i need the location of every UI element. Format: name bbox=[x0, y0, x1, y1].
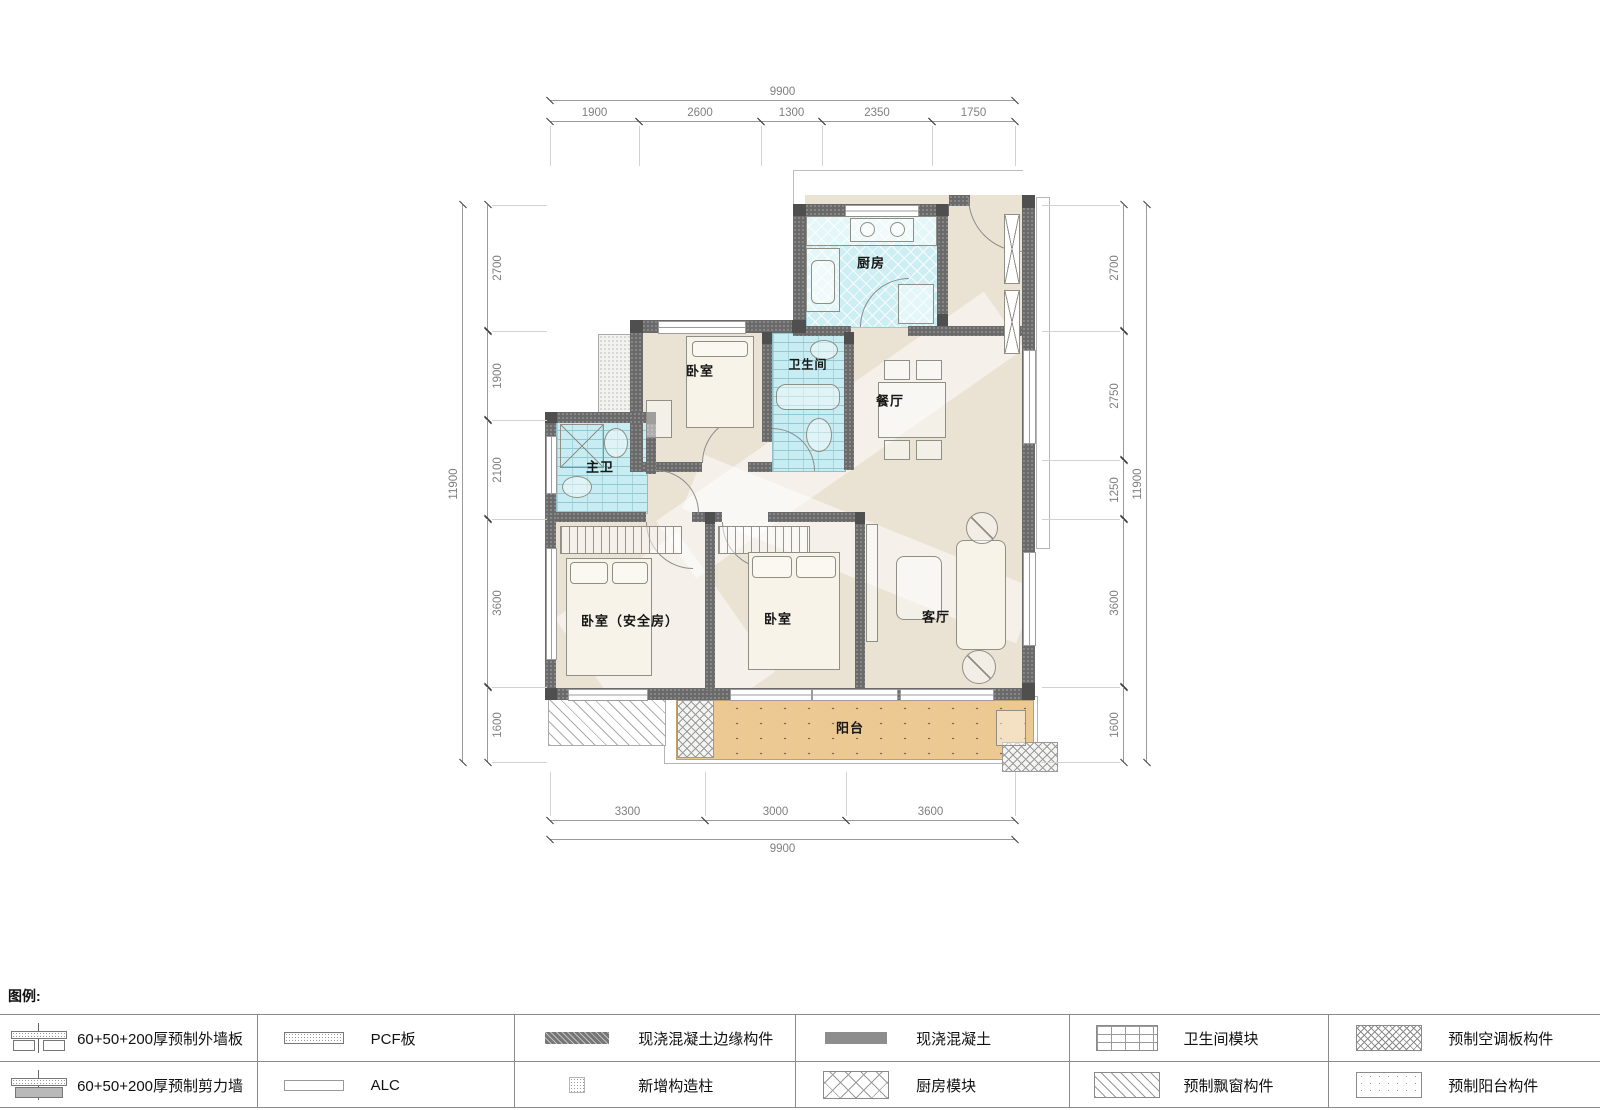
edge-member-block bbox=[630, 320, 643, 333]
dim-segment: 1600 bbox=[1123, 687, 1125, 762]
dim-segment: 1250 bbox=[1123, 460, 1125, 519]
window bbox=[1023, 350, 1036, 444]
dim-segment: 2750 bbox=[1123, 331, 1125, 460]
room-label-kitchen: 厨房 bbox=[857, 253, 885, 272]
edge-member-block bbox=[793, 204, 806, 216]
bathtub bbox=[776, 384, 840, 410]
extension-line bbox=[1042, 460, 1120, 461]
dim-segment: 3000 bbox=[705, 820, 846, 822]
edge-member-block bbox=[792, 320, 806, 333]
room-label-bedroom-top: 卧室 bbox=[686, 361, 714, 380]
chair bbox=[884, 440, 910, 460]
wall-segment bbox=[762, 332, 772, 442]
precast-ac-panel-symbol bbox=[1329, 1025, 1448, 1051]
dim-segment: 1900 bbox=[550, 121, 639, 123]
window bbox=[546, 436, 557, 494]
new-structural-column-symbol bbox=[515, 1077, 638, 1093]
kitchen-sink bbox=[811, 260, 835, 304]
window bbox=[900, 689, 994, 701]
wall-segment bbox=[630, 320, 643, 472]
extension-line bbox=[1015, 126, 1016, 166]
room-label-bedroom-mid: 卧室 bbox=[764, 609, 792, 628]
pillow bbox=[612, 562, 648, 584]
edge-member-block bbox=[844, 332, 854, 344]
extension-line bbox=[1042, 687, 1120, 688]
legend-table: 60+50+200厚预制外墙板 PCF板 现浇混凝土边缘构件 现浇混凝土 卫生间… bbox=[0, 1014, 1600, 1108]
sliding-door bbox=[812, 689, 898, 701]
legend-label: 卫生间模块 bbox=[1184, 1028, 1328, 1049]
extension-line bbox=[492, 687, 547, 688]
edge-member-block bbox=[855, 512, 865, 524]
wall-segment bbox=[556, 512, 646, 522]
extension-line bbox=[1042, 331, 1120, 332]
wall-segment bbox=[705, 522, 715, 690]
shoe-cabinet bbox=[1004, 214, 1020, 284]
legend-cell-precast-exterior-wall: 60+50+200厚预制外墙板 bbox=[0, 1015, 258, 1061]
edge-member-block bbox=[1022, 195, 1035, 208]
room-label-living: 客厅 bbox=[922, 607, 950, 626]
window bbox=[730, 689, 812, 701]
extension-line bbox=[492, 331, 547, 332]
fridge bbox=[898, 284, 934, 324]
chair bbox=[916, 440, 942, 460]
extension-line bbox=[492, 205, 547, 206]
edge-member-block bbox=[545, 688, 557, 700]
window bbox=[568, 689, 648, 701]
legend-cell-kitchen-module: 厨房模块 bbox=[796, 1062, 1070, 1108]
window bbox=[658, 321, 746, 334]
edge-member-block bbox=[762, 332, 772, 344]
legend-cell-alc: ALC bbox=[258, 1062, 515, 1108]
dim-segment: 2600 bbox=[639, 121, 761, 123]
toilet bbox=[604, 428, 628, 458]
cast-in-place-concrete-symbol bbox=[796, 1032, 916, 1044]
legend-label: 厨房模块 bbox=[916, 1075, 1069, 1096]
burner bbox=[890, 222, 905, 237]
chair bbox=[916, 360, 942, 380]
extension-line bbox=[761, 126, 762, 166]
wall-segment bbox=[793, 204, 806, 332]
chair bbox=[884, 360, 910, 380]
extension-line bbox=[492, 762, 547, 763]
legend-row: 60+50+200厚预制剪力墙 ALC 新增构造柱 厨房模块 预制飘窗构件 预制… bbox=[0, 1062, 1600, 1108]
floor-plan-sheet: 厨房 卧室 卫生间 餐厅 主卫 卧室（安全房） 卧室 客厅 阳台 9900 19… bbox=[0, 0, 1600, 1110]
extension-line bbox=[1042, 205, 1120, 206]
window bbox=[546, 548, 557, 660]
precast-exterior-wall-symbol bbox=[0, 1023, 77, 1053]
burner bbox=[860, 222, 875, 237]
pcf-panel-symbol bbox=[258, 1032, 371, 1044]
extension-line bbox=[1042, 762, 1120, 763]
dim-segment: 3300 bbox=[550, 820, 705, 822]
legend-label: 新增构造柱 bbox=[638, 1075, 795, 1096]
edge-member-block bbox=[937, 314, 948, 326]
dim-total-left: 11900 bbox=[462, 205, 464, 762]
room-label-bath: 卫生间 bbox=[788, 356, 827, 373]
extension-line bbox=[492, 420, 547, 421]
pillow bbox=[570, 562, 608, 584]
washing-machine bbox=[996, 710, 1026, 746]
plant bbox=[966, 512, 998, 544]
extension-line bbox=[492, 519, 547, 520]
precast-bay-window-symbol bbox=[1070, 1072, 1184, 1098]
sofa bbox=[956, 540, 1006, 650]
edge-member-block bbox=[705, 512, 715, 524]
dim-segment: 1600 bbox=[487, 687, 489, 762]
pillow bbox=[752, 556, 792, 578]
legend-label: PCF板 bbox=[371, 1028, 514, 1049]
room-label-master-bath: 主卫 bbox=[586, 457, 614, 476]
extension-line bbox=[550, 772, 551, 816]
bathroom-module-symbol bbox=[1070, 1025, 1184, 1051]
room-label-bedroom-safe: 卧室（安全房） bbox=[581, 611, 679, 630]
window bbox=[1023, 552, 1036, 646]
legend-cell-concrete: 现浇混凝土 bbox=[796, 1015, 1070, 1061]
wall-segment bbox=[844, 332, 854, 470]
legend-label: ALC bbox=[371, 1077, 514, 1094]
extension-line bbox=[639, 126, 640, 166]
plant bbox=[962, 650, 996, 684]
legend-cell-balcony-component: 预制阳台构件 bbox=[1329, 1062, 1600, 1108]
pillow bbox=[796, 556, 836, 578]
extension-line bbox=[846, 772, 847, 816]
precast-balcony-symbol bbox=[1329, 1072, 1448, 1098]
boundary-line bbox=[793, 170, 1023, 171]
dim-segment: 3600 bbox=[1123, 519, 1125, 687]
legend-label: 现浇混凝土 bbox=[916, 1028, 1069, 1049]
wall-segment bbox=[937, 204, 948, 326]
legend-cell-precast-shear-wall: 60+50+200厚预制剪力墙 bbox=[0, 1062, 258, 1108]
boundary-line bbox=[793, 170, 794, 205]
legend-label: 预制空调板构件 bbox=[1448, 1028, 1600, 1049]
pillow bbox=[692, 341, 748, 357]
legend-label: 预制飘窗构件 bbox=[1184, 1075, 1328, 1096]
legend-title: 图例: bbox=[8, 986, 41, 1006]
dim-segment: 1900 bbox=[487, 331, 489, 420]
wall-segment bbox=[545, 412, 646, 423]
dim-segment: 2700 bbox=[487, 205, 489, 331]
tv-bench bbox=[866, 524, 878, 642]
legend-label: 预制阳台构件 bbox=[1448, 1075, 1600, 1096]
legend-cell-bathroom-module: 卫生间模块 bbox=[1070, 1015, 1329, 1061]
dim-segment: 1300 bbox=[761, 121, 822, 123]
ac-ledge bbox=[1036, 197, 1050, 549]
extension-line bbox=[1015, 772, 1016, 816]
extension-line bbox=[1042, 519, 1120, 520]
dim-segment: 1750 bbox=[932, 121, 1015, 123]
wardrobe bbox=[560, 526, 682, 554]
edge-member-block bbox=[1022, 683, 1035, 700]
legend-cell-ac-panel: 预制空调板构件 bbox=[1329, 1015, 1600, 1061]
extension-line bbox=[705, 772, 706, 816]
edge-member-block bbox=[936, 204, 948, 216]
kitchen-module-symbol bbox=[796, 1071, 916, 1099]
legend-cell-structural-column: 新增构造柱 bbox=[515, 1062, 796, 1108]
alc-panel-symbol bbox=[258, 1080, 371, 1091]
legend-label: 现浇混凝土边缘构件 bbox=[638, 1028, 795, 1049]
desk bbox=[646, 400, 672, 438]
dim-segment: 2700 bbox=[1123, 205, 1125, 331]
shoe-cabinet bbox=[1004, 290, 1020, 354]
dim-total-right: 11900 bbox=[1146, 205, 1148, 762]
edge-member-block bbox=[545, 412, 557, 423]
precast-ac-panel-component bbox=[677, 700, 714, 758]
wall-segment bbox=[855, 512, 865, 690]
ac-platform bbox=[598, 334, 632, 416]
dim-segment: 3600 bbox=[487, 519, 489, 687]
wall-segment bbox=[768, 512, 865, 522]
legend-row: 60+50+200厚预制外墙板 PCF板 现浇混凝土边缘构件 现浇混凝土 卫生间… bbox=[0, 1015, 1600, 1062]
legend-label: 60+50+200厚预制外墙板 bbox=[77, 1028, 257, 1049]
toilet bbox=[806, 418, 832, 452]
precast-bay-window-component bbox=[548, 698, 666, 746]
precast-shear-wall-symbol bbox=[0, 1070, 77, 1100]
washbasin bbox=[562, 476, 592, 498]
dim-total-bottom: 9900 bbox=[550, 839, 1015, 841]
dim-segment: 2100 bbox=[487, 420, 489, 519]
wall-segment bbox=[748, 462, 772, 472]
extension-line bbox=[932, 126, 933, 166]
dim-segment: 3600 bbox=[846, 820, 1015, 822]
legend-cell-pcf: PCF板 bbox=[258, 1015, 515, 1061]
legend-cell-edge-member: 现浇混凝土边缘构件 bbox=[515, 1015, 796, 1061]
room-label-balcony: 阳台 bbox=[836, 718, 864, 737]
legend-label: 60+50+200厚预制剪力墙 bbox=[77, 1075, 257, 1096]
wardrobe bbox=[718, 526, 810, 554]
wall-segment bbox=[949, 195, 970, 206]
dim-segment: 2350 bbox=[822, 121, 932, 123]
legend-cell-bay-window: 预制飘窗构件 bbox=[1070, 1062, 1329, 1108]
precast-ac-panel-component bbox=[1002, 742, 1058, 772]
extension-line bbox=[822, 126, 823, 166]
extension-line bbox=[550, 126, 551, 166]
cast-in-place-edge-symbol bbox=[515, 1032, 638, 1044]
room-label-dining: 餐厅 bbox=[876, 391, 904, 410]
dim-total-top: 9900 bbox=[550, 100, 1015, 102]
